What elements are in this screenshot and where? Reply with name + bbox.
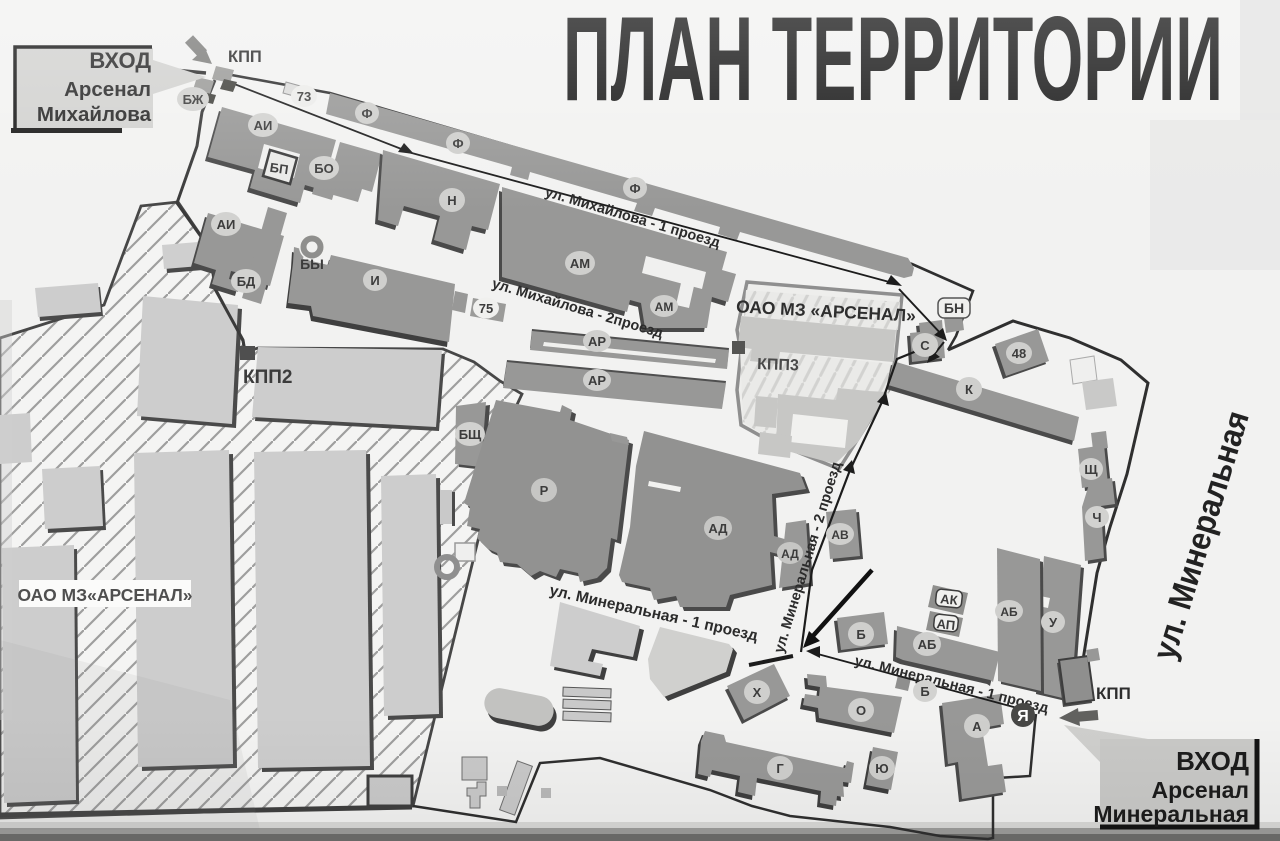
svg-text:О: О [856,703,866,718]
svg-text:БЖ: БЖ [183,92,204,107]
svg-text:Р: Р [540,483,549,498]
svg-text:Г: Г [776,761,784,776]
svg-text:БЫ: БЫ [300,256,324,272]
svg-text:ВХОД: ВХОД [1176,746,1249,776]
svg-text:Щ: Щ [1084,462,1098,477]
svg-text:АИ: АИ [254,118,273,133]
svg-text:АД: АД [708,521,728,536]
svg-text:73: 73 [297,89,311,104]
svg-text:75: 75 [479,301,493,316]
svg-text:БН: БН [944,300,964,316]
svg-text:АР: АР [588,373,606,388]
svg-text:АИ: АИ [217,217,236,232]
svg-text:КПП3: КПП3 [757,356,799,374]
svg-text:АП: АП [936,616,956,633]
svg-text:Н: Н [447,193,456,208]
svg-text:БО: БО [314,161,333,176]
svg-text:БД: БД [237,274,256,289]
svg-text:Ф: Ф [452,136,463,151]
svg-text:АВ: АВ [831,528,849,542]
svg-text:Ф: Ф [361,106,372,121]
svg-text:КПП: КПП [1096,684,1131,703]
svg-text:Арсенал: Арсенал [1151,777,1249,803]
svg-text:БП: БП [269,160,290,177]
svg-text:Б: Б [856,627,865,642]
svg-text:ОАО МЗ«АРСЕНАЛ»: ОАО МЗ«АРСЕНАЛ» [17,585,192,605]
svg-text:Х: Х [753,685,762,700]
svg-text:АБ: АБ [918,637,937,652]
svg-text:БЩ: БЩ [459,427,482,442]
svg-text:Я: Я [1017,708,1029,725]
svg-text:Ф: Ф [629,181,640,196]
svg-text:КПП2: КПП2 [243,367,292,388]
svg-text:А: А [972,719,982,734]
svg-text:КПП: КПП [228,48,262,66]
svg-text:АР: АР [588,334,606,349]
svg-text:Минеральная: Минеральная [1093,801,1249,827]
svg-text:И: И [370,273,379,288]
svg-text:ПЛАН ТЕРРИТОРИИ: ПЛАН ТЕРРИТОРИИ [563,0,1223,126]
svg-text:АД: АД [781,547,799,561]
svg-text:Михайлова: Михайлова [37,103,152,126]
svg-text:Арсенал: Арсенал [64,78,151,101]
svg-text:К: К [965,382,973,397]
svg-text:У: У [1049,615,1058,630]
svg-text:Ю: Ю [875,761,888,776]
svg-text:АБ: АБ [1000,605,1018,619]
svg-text:48: 48 [1012,346,1026,361]
svg-text:АМ: АМ [570,256,590,271]
svg-text:АМ: АМ [655,300,674,314]
svg-text:Б: Б [920,684,929,699]
svg-text:Ч: Ч [1092,510,1101,525]
svg-text:ВХОД: ВХОД [89,48,151,73]
svg-text:АК: АК [940,591,959,608]
svg-text:С: С [920,338,930,353]
